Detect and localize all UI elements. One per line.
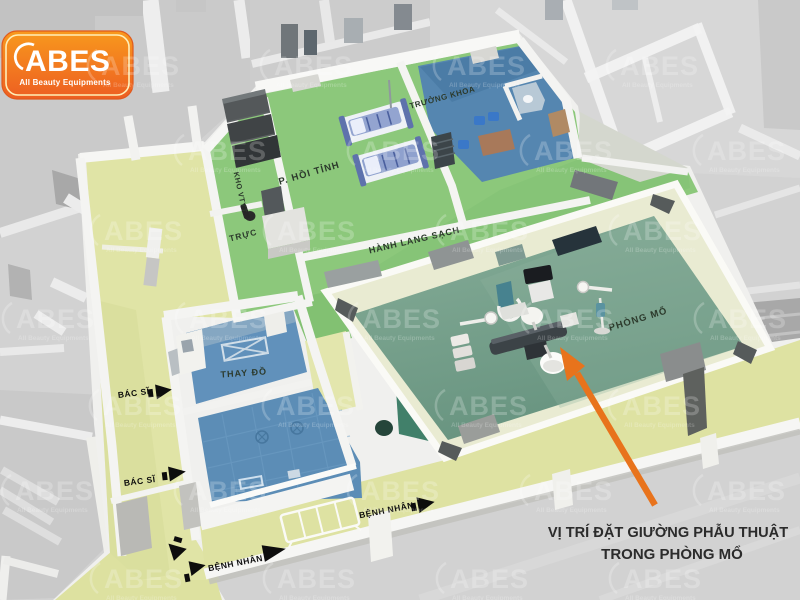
svg-text:VỊ TRÍ ĐẶT GIƯỜNG PHẪU THUẬT: VỊ TRÍ ĐẶT GIƯỜNG PHẪU THUẬT — [548, 523, 788, 541]
svg-text:TRONG PHÒNG MỔ: TRONG PHÒNG MỔ — [601, 545, 743, 563]
svg-text:ABES: ABES — [25, 45, 110, 78]
svg-text:All Beauty Equipments: All Beauty Equipments — [19, 78, 111, 87]
